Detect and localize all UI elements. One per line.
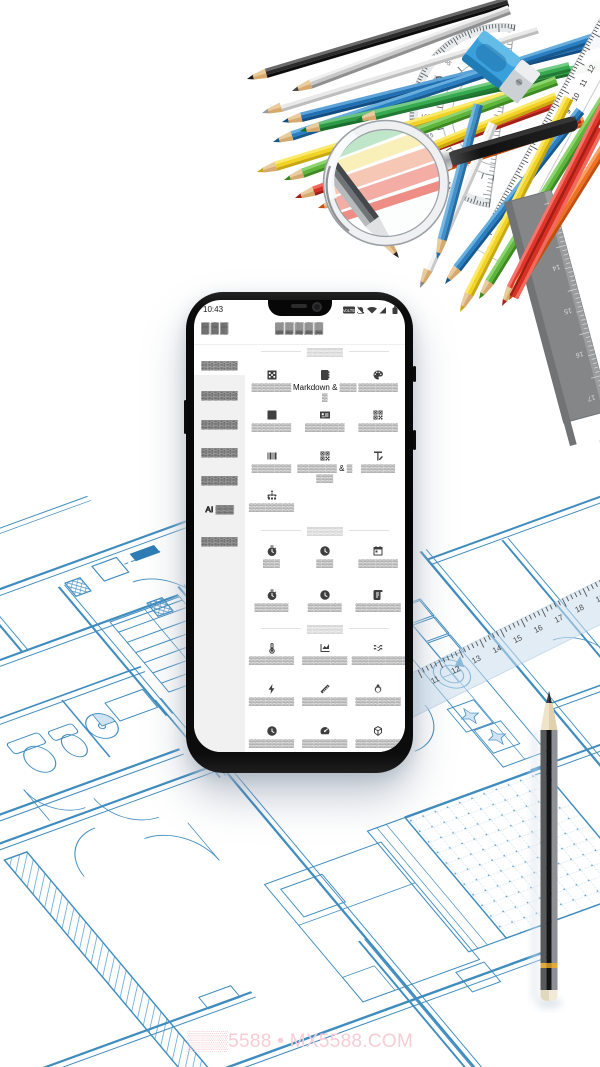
svg-text:VoLTE: VoLTE (343, 308, 355, 313)
